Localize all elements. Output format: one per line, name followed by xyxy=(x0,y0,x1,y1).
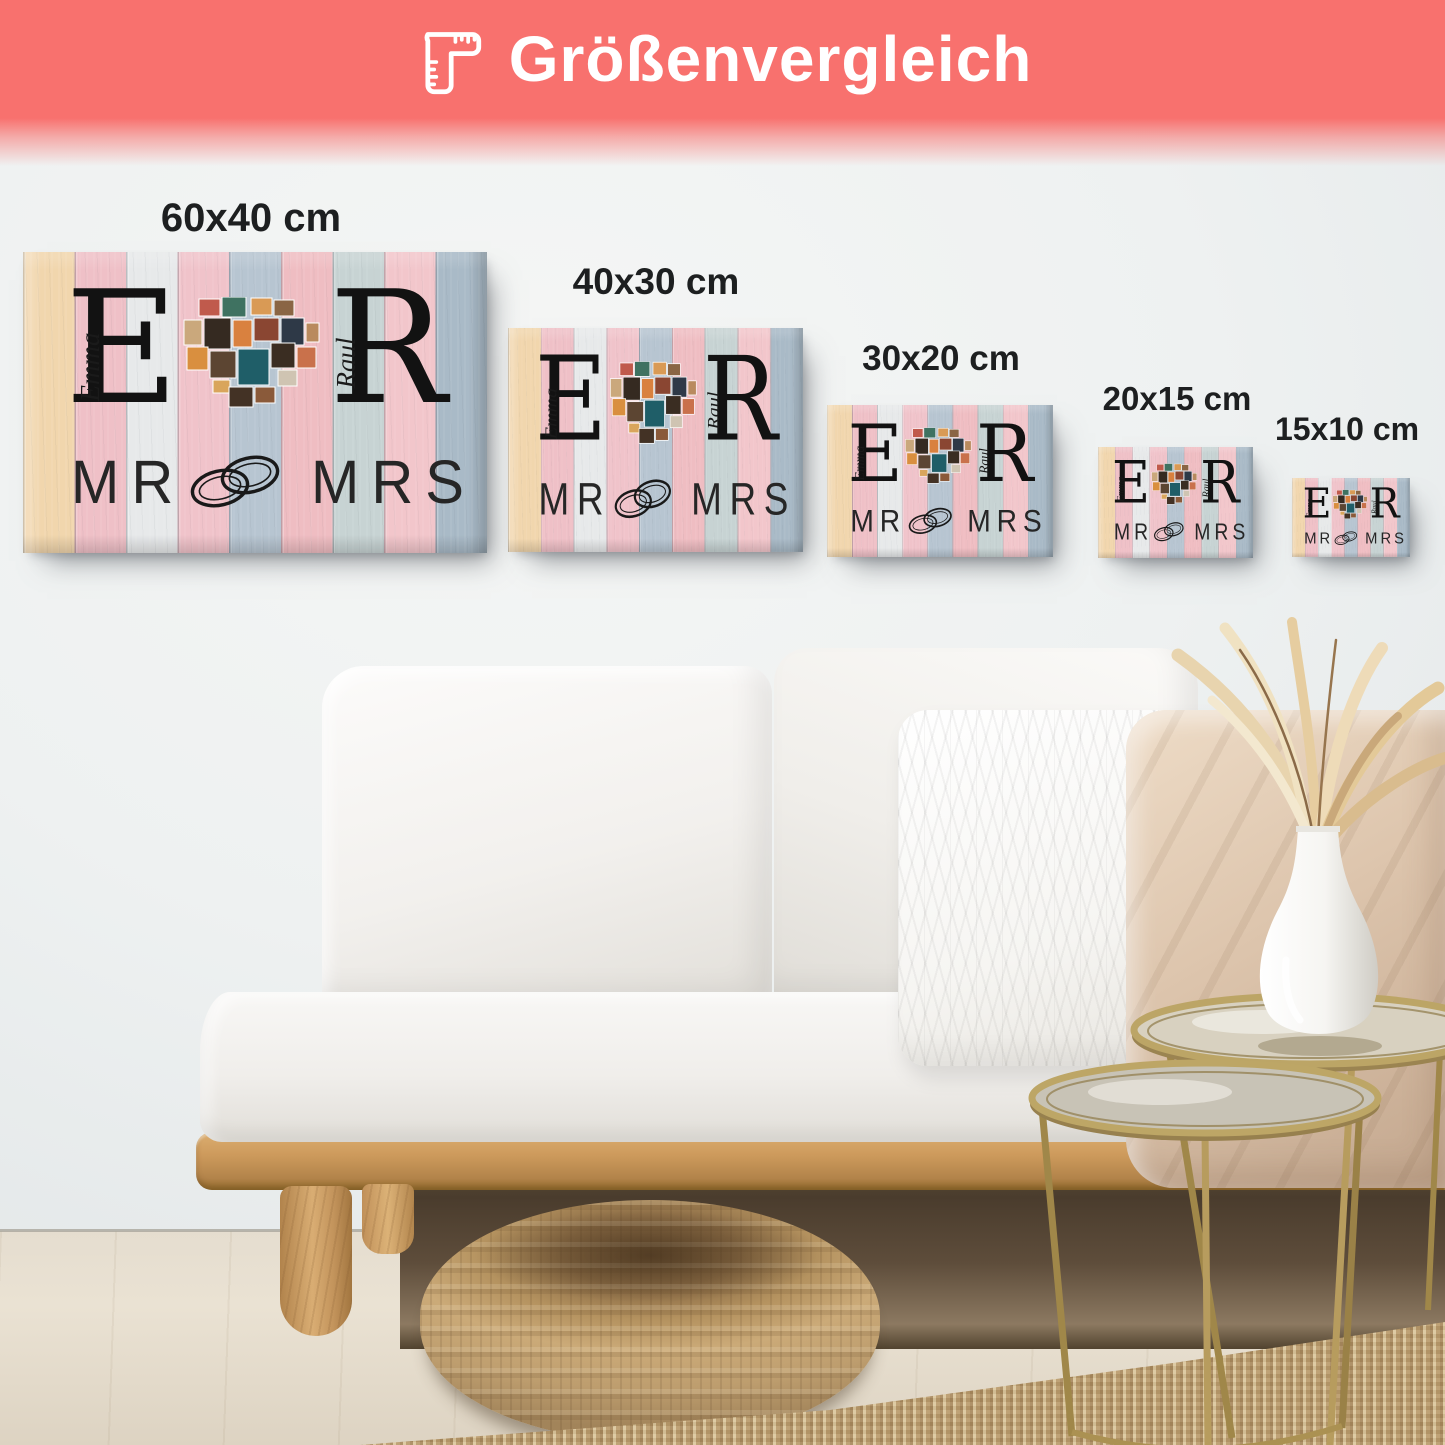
mr-caption: MR xyxy=(850,506,906,537)
wedding-rings-icon xyxy=(906,505,954,536)
size-label-20x15: 20x15 cm xyxy=(1103,380,1252,418)
canvas-artwork: E Emma R Raul MR xyxy=(1292,478,1410,557)
name-script-right: Raul xyxy=(331,321,361,405)
sofa-leg-back xyxy=(362,1184,414,1254)
size-label-30x20: 30x20 cm xyxy=(862,339,1020,379)
name-script-right: Raul xyxy=(977,440,992,482)
name-script-left: Emma xyxy=(1115,474,1125,505)
name-script-right: Raul xyxy=(1201,472,1211,503)
product-canvas-15x10: E Emma R Raul MR xyxy=(1292,478,1410,557)
name-script-left: Emma xyxy=(541,382,560,444)
header-banner: Größenvergleich xyxy=(0,0,1445,118)
mrs-caption: MRS xyxy=(967,506,1047,537)
page-title: Größenvergleich xyxy=(509,22,1033,96)
canvas-artwork: E Emma R Raul MR xyxy=(827,405,1053,557)
sofa-leg-front xyxy=(280,1186,352,1336)
heart-photo-collage xyxy=(1151,464,1197,506)
wedding-rings-icon xyxy=(1333,530,1358,546)
mr-caption: MR xyxy=(1114,521,1152,544)
heart-photo-collage xyxy=(1333,490,1368,520)
size-label-40x30: 40x30 cm xyxy=(573,261,740,303)
name-script-left: Emma xyxy=(1305,497,1313,519)
heart-photo-collage xyxy=(905,428,972,485)
canvas-artwork: E Emma R Raul MR xyxy=(508,328,803,552)
mrs-caption: MRS xyxy=(691,477,796,523)
name-script-right: Raul xyxy=(1370,496,1378,518)
rattan-pouf xyxy=(420,1200,880,1442)
mrs-caption: MRS xyxy=(311,452,476,513)
size-comparison-graphic: Größenvergleich 60x40 cm 40x30 cm 30x20 … xyxy=(0,0,1445,1445)
wedding-rings-icon xyxy=(612,475,674,521)
vase-with-dried-plant xyxy=(1120,600,1445,1070)
ruler-corner-icon xyxy=(413,26,483,96)
mrs-caption: MRS xyxy=(1365,530,1407,546)
product-canvas-30x20: E Emma R Raul MR xyxy=(827,405,1053,557)
size-label-60x40: 60x40 cm xyxy=(161,196,341,241)
heart-photo-collage xyxy=(183,297,320,410)
name-script-left: Emma xyxy=(75,325,105,409)
mr-caption: MR xyxy=(539,477,612,523)
canvas-artwork: E Emma R Raul MR xyxy=(1098,447,1253,558)
canvas-artwork: E Emma R Raul MR xyxy=(23,252,487,553)
mr-caption: MR xyxy=(71,452,185,513)
heart-photo-collage xyxy=(610,361,697,445)
sofa-back-cushion-left xyxy=(322,666,772,1011)
product-canvas-40x30: E Emma R Raul MR xyxy=(508,328,803,552)
size-label-15x10: 15x10 cm xyxy=(1275,411,1419,448)
name-script-right: Raul xyxy=(704,379,723,441)
wedding-rings-icon xyxy=(186,450,284,512)
product-canvas-60x40: E Emma R Raul MR xyxy=(23,252,487,553)
mr-caption: MR xyxy=(1304,530,1333,546)
product-canvas-20x15: E Emma R Raul MR xyxy=(1098,447,1253,558)
wedding-rings-icon xyxy=(1152,520,1185,543)
mrs-caption: MRS xyxy=(1194,521,1249,544)
name-script-left: Emma xyxy=(852,442,867,484)
